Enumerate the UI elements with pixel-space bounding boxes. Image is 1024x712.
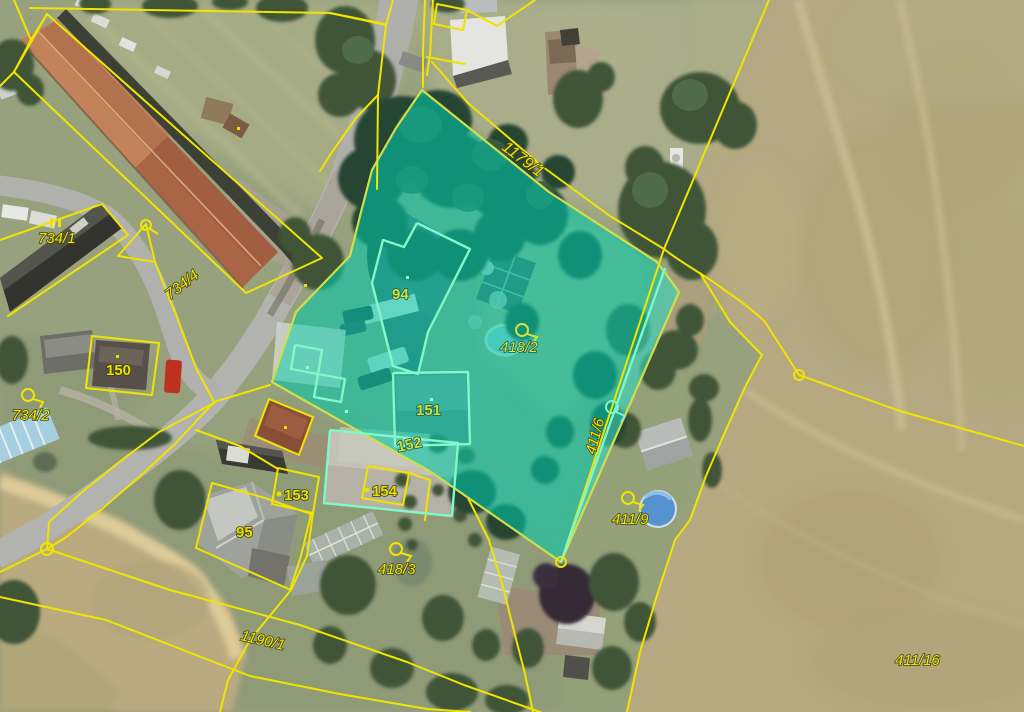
svg-text:418/2: 418/2	[500, 339, 538, 356]
svg-text:411/9: 411/9	[612, 511, 649, 528]
svg-text:418/3: 418/3	[378, 561, 416, 578]
svg-text:153: 153	[284, 487, 309, 504]
svg-text:734/1: 734/1	[38, 230, 76, 247]
svg-text:411/16: 411/16	[895, 652, 940, 669]
svg-text:150: 150	[106, 362, 131, 379]
svg-text:151: 151	[416, 402, 441, 419]
svg-text:154: 154	[372, 483, 398, 500]
svg-text:734/2: 734/2	[12, 407, 50, 424]
svg-text:94: 94	[392, 286, 409, 303]
svg-text:95: 95	[236, 524, 253, 541]
